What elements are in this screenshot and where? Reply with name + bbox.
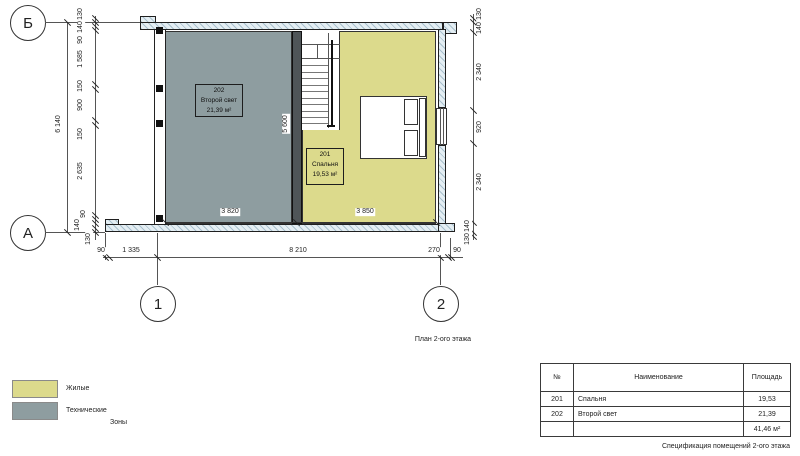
cell-name: Спальня: [574, 392, 744, 407]
dim-label: 270: [427, 247, 441, 255]
stair-tread: [302, 72, 328, 73]
dim-label: 1 335: [121, 247, 141, 255]
stair-tread: [302, 91, 328, 92]
legend-title: Зоны: [110, 419, 127, 426]
bed-pillow: [404, 99, 418, 125]
dim-label: 130: [464, 232, 472, 246]
stair-tread: [302, 65, 328, 66]
cell-total-area: 41,46 м²: [744, 422, 791, 437]
room-area: 19,53 м²: [307, 170, 343, 180]
stair-landing-divider: [317, 44, 318, 58]
partition-wall: [292, 31, 302, 224]
dim-label: 900: [77, 98, 85, 112]
dim-label: 6 140: [55, 114, 63, 134]
grid-label: А: [23, 225, 33, 242]
left-wall: [154, 22, 166, 232]
room-area: 21,39 м²: [196, 106, 242, 116]
top-wall-left-step: [140, 16, 156, 23]
bed-pillow: [404, 130, 418, 156]
room-number: 201: [307, 150, 343, 160]
cell-empty: [574, 422, 744, 437]
dim-label: 150: [77, 127, 85, 141]
grid-label: 2: [437, 296, 445, 313]
spec-caption: Спецификация помещений 2-ого этажа: [597, 443, 790, 450]
right-wall-upper: [438, 29, 446, 108]
legend-label-technical: Технические: [66, 407, 107, 414]
dim-label: 3 850: [355, 208, 375, 216]
stair-landing-line: [302, 58, 340, 59]
dim-label: 2 340: [476, 172, 484, 192]
dim-label: 920: [476, 120, 484, 134]
room-number: 202: [196, 86, 242, 96]
dim-label: 140: [77, 20, 85, 34]
grid-label: 1: [154, 296, 162, 313]
bottom-wall-left-step: [105, 219, 119, 225]
wall-post: [156, 120, 163, 127]
dim-label: 150: [77, 79, 85, 93]
grid-col-2: 2: [423, 286, 459, 322]
stairwell: [302, 31, 340, 130]
grid-row-B: Б: [10, 5, 46, 41]
specification-table: № Наименование Площадь 201 Спальня 19,53…: [540, 363, 791, 437]
cell-number: 202: [541, 407, 574, 422]
dim-label: 140: [464, 219, 472, 233]
dim-line-left-chain: [95, 16, 96, 240]
stair-handrail: [331, 40, 333, 126]
dim-line-interior: [165, 222, 436, 223]
stair-handrail-foot: [327, 125, 335, 127]
dim-label: 140: [476, 21, 484, 35]
stair-tread: [302, 85, 328, 86]
floor-plan-sheet: 202 Второй свет 21,39 м² 201 Спальня 19,…: [0, 0, 800, 456]
grid-col-1: 1: [140, 286, 176, 322]
plan-caption: План 2-ого этажа: [388, 336, 498, 343]
table-total-row: 41,46 м²: [541, 422, 791, 437]
dim-label: 130: [85, 232, 93, 246]
table-row: 201 Спальня 19,53: [541, 392, 791, 407]
room-201-label-box: 201 Спальня 19,53 м²: [306, 148, 344, 185]
table-row: 202 Второй свет 21,39: [541, 407, 791, 422]
cell-number: 201: [541, 392, 574, 407]
top-wall: [140, 22, 443, 30]
table-header-name: Наименование: [574, 364, 744, 392]
room-202-fill: [165, 31, 292, 224]
bottom-wall: [105, 224, 446, 232]
room-name: Спальня: [307, 160, 343, 170]
cell-area: 19,53: [744, 392, 791, 407]
room-202-label-box: 202 Второй свет 21,39 м²: [195, 84, 243, 117]
stair-tread: [302, 78, 328, 79]
dim-line-right-chain: [473, 14, 474, 240]
bed-headboard: [419, 98, 426, 157]
dim-label: 90: [452, 247, 462, 255]
stair-landing-line: [302, 44, 340, 45]
stair-tread: [302, 117, 328, 118]
table-header-number: №: [541, 364, 574, 392]
bottom-wall-right-step: [438, 223, 455, 232]
dim-label: 3 820: [220, 208, 240, 216]
dim-label: 130: [476, 7, 484, 21]
legend-label-residential: Жилые: [66, 385, 89, 392]
cell-empty: [541, 422, 574, 437]
dim-label: 2 340: [476, 62, 484, 82]
room-name: Второй свет: [196, 96, 242, 106]
table-header-area: Площадь: [744, 364, 791, 392]
dim-label: 90: [96, 247, 106, 255]
dim-label: 1 585: [77, 49, 85, 69]
dim-label: 130: [77, 7, 85, 21]
dim-line-left-overall: [67, 22, 68, 232]
window-frame-line: [443, 108, 444, 145]
stair-tread: [302, 104, 328, 105]
wall-post: [156, 27, 163, 34]
right-wall-lower: [438, 145, 446, 224]
cell-area: 21,39: [744, 407, 791, 422]
grid-label: Б: [23, 15, 33, 32]
dim-label: 8 210: [288, 247, 308, 255]
window: [436, 108, 447, 145]
stair-tread: [302, 123, 328, 124]
stair-tread: [302, 98, 328, 99]
dim-label: 90: [77, 35, 85, 45]
stair-tread: [302, 111, 328, 112]
stair-stringer-line: [328, 33, 329, 128]
legend-swatch-technical: [12, 402, 58, 420]
dim-label: 140: [74, 218, 82, 232]
wall-post: [156, 85, 163, 92]
legend-swatch-residential: [12, 380, 58, 398]
cell-name: Второй свет: [574, 407, 744, 422]
grid-row-A: А: [10, 215, 46, 251]
dim-label: 5 600: [282, 114, 290, 134]
dim-label: 2 635: [77, 161, 85, 181]
window-frame-line: [440, 108, 441, 145]
